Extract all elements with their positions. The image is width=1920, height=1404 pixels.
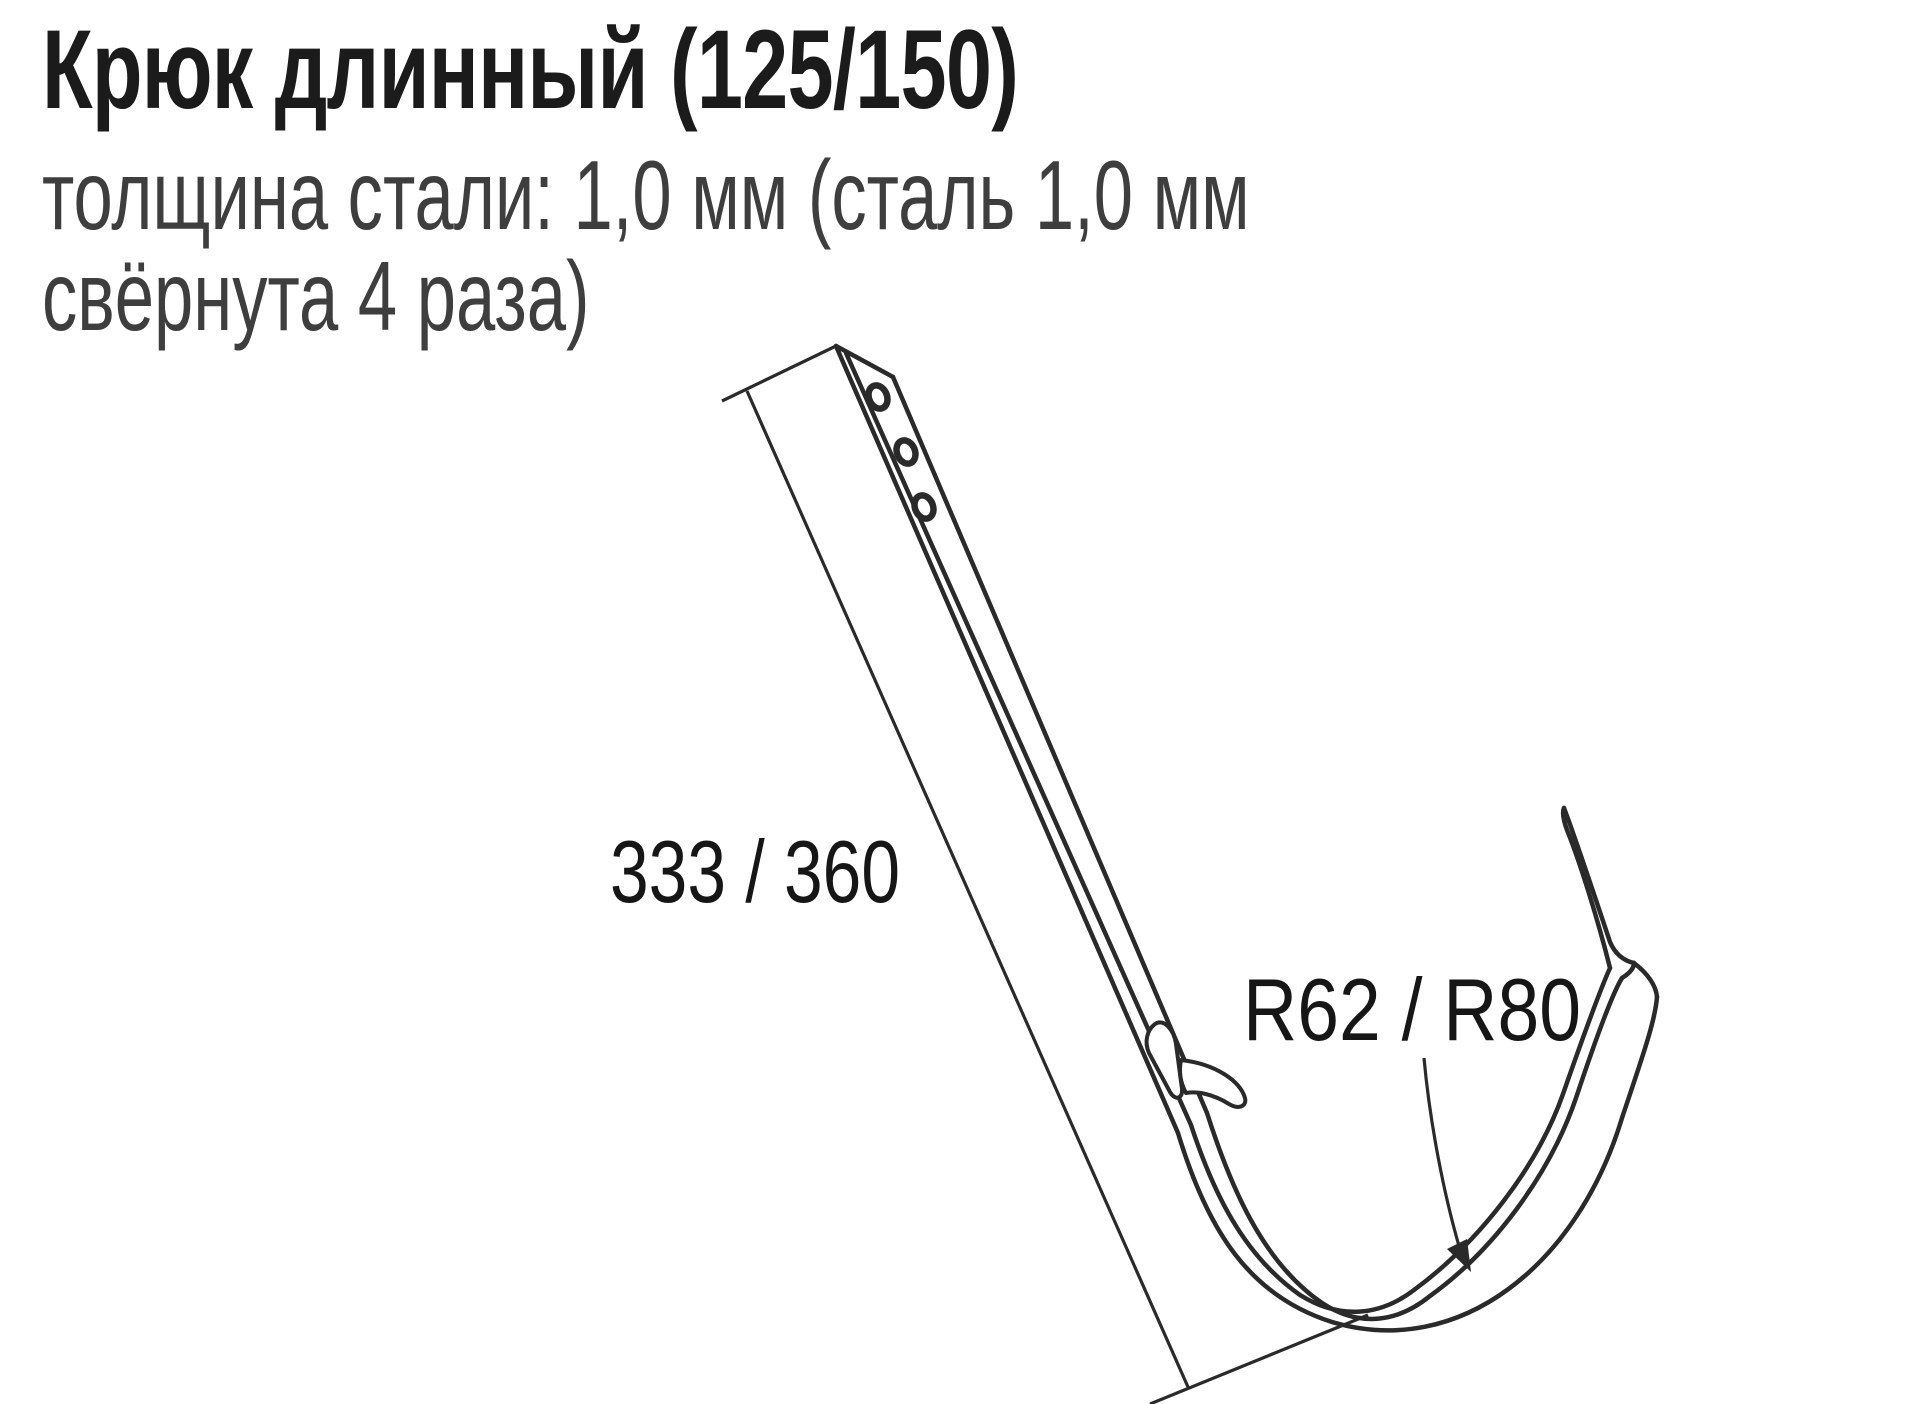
length-dimension-label: 333 / 360 (610, 822, 900, 921)
clip-tab (1147, 1022, 1183, 1097)
length-dimension-assembly: 333 / 360 (610, 346, 1368, 1404)
lip-joint (1622, 963, 1634, 978)
radius-arrowhead (1447, 1239, 1471, 1272)
lip-notch (1634, 963, 1657, 997)
radius-callout: R62 / R80 (1243, 960, 1581, 1272)
extension-line-top (722, 346, 836, 401)
hook-diagram: 333 / 360 (0, 0, 1920, 1404)
screw-hole (911, 493, 937, 522)
radius-arrow-line (1424, 1058, 1459, 1246)
strap-right-outline-and-inner-bowl (893, 377, 1622, 1319)
tip-inner-edge (1563, 808, 1610, 968)
page: Крюк длинный (125/150) толщина стали: 1,… (0, 0, 1920, 1404)
hook-strap (836, 346, 1657, 1330)
radius-dimension-label: R62 / R80 (1243, 960, 1581, 1059)
extension-line-bottom (1150, 1315, 1368, 1404)
clip-flap (1180, 1060, 1245, 1107)
tip-outer-edge (1564, 808, 1634, 963)
